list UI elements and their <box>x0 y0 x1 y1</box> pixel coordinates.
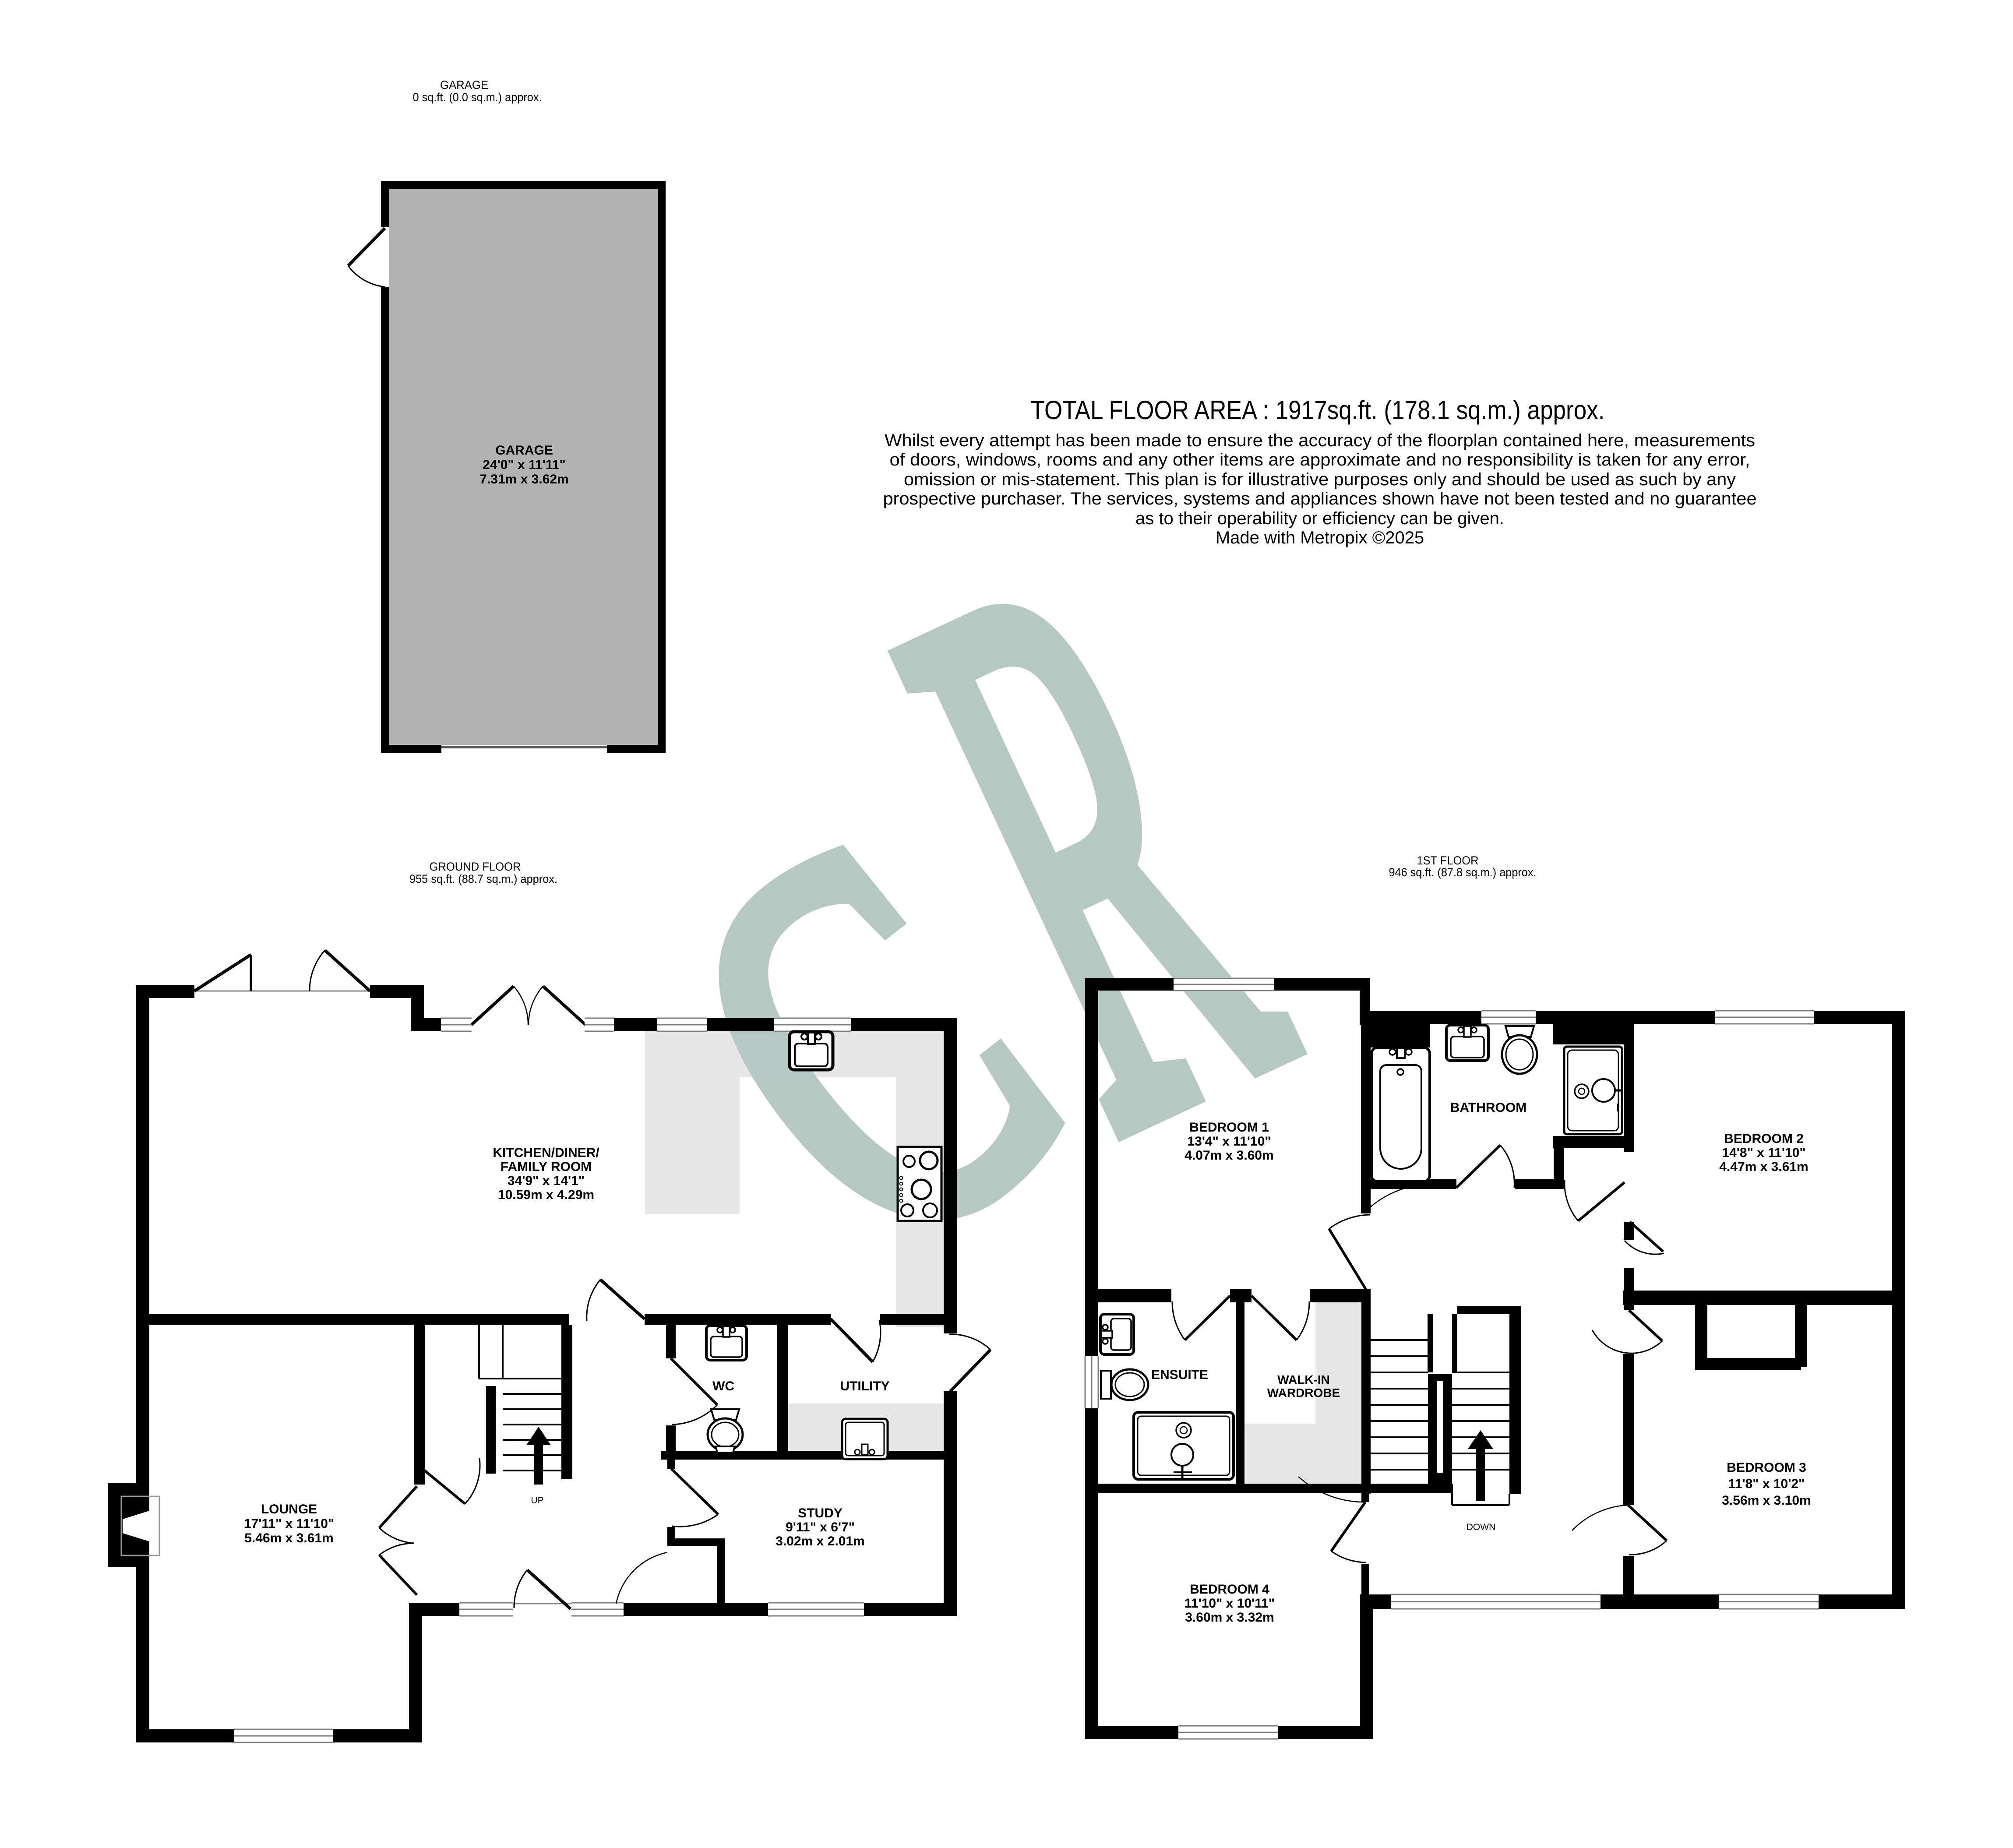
svg-text:GARAGE: GARAGE <box>495 443 553 458</box>
svg-text:UP: UP <box>531 1495 543 1506</box>
svg-text:11'8" x 10'2": 11'8" x 10'2" <box>1728 1477 1805 1491</box>
svg-text:3.60m x 3.32m: 3.60m x 3.32m <box>1185 1610 1274 1625</box>
svg-text:UTILITY: UTILITY <box>840 1379 889 1393</box>
svg-text:13'4" x 11'10": 13'4" x 11'10" <box>1187 1134 1271 1149</box>
svg-text:3.02m x 2.01m: 3.02m x 2.01m <box>776 1534 864 1548</box>
svg-text:prospective purchaser. The ser: prospective purchaser. The services, sys… <box>883 489 1757 508</box>
svg-text:Made with Metropix ©2025: Made with Metropix ©2025 <box>1216 528 1424 547</box>
svg-text:9'11" x 6'7": 9'11" x 6'7" <box>786 1520 855 1534</box>
svg-text:17'11" x 11'10": 17'11" x 11'10" <box>244 1516 334 1531</box>
svg-text:WALK-IN: WALK-IN <box>1277 1373 1330 1386</box>
svg-text:34'9" x 14'1": 34'9" x 14'1" <box>508 1174 585 1188</box>
svg-text:STUDY: STUDY <box>798 1506 843 1520</box>
svg-text:KITCHEN/DINER/: KITCHEN/DINER/ <box>493 1146 599 1160</box>
svg-text:5.46m x 3.61m: 5.46m x 3.61m <box>244 1531 333 1545</box>
svg-text:3.56m x 3.10m: 3.56m x 3.10m <box>1722 1493 1811 1508</box>
svg-text:955 sq.ft. (88.7 sq.m.) approx: 955 sq.ft. (88.7 sq.m.) approx. <box>409 872 557 885</box>
svg-text:ENSUITE: ENSUITE <box>1151 1368 1208 1382</box>
svg-text:BEDROOM 4: BEDROOM 4 <box>1190 1582 1269 1597</box>
svg-text:Whilst every attempt has been: Whilst every attempt has been made to en… <box>885 431 1755 450</box>
svg-text:BEDROOM 2: BEDROOM 2 <box>1724 1132 1804 1146</box>
svg-text:0 sq.ft. (0.0 sq.m.) approx.: 0 sq.ft. (0.0 sq.m.) approx. <box>413 91 542 104</box>
svg-text:omission or mis-statement. Thi: omission or mis-statement. This plan is … <box>904 470 1736 489</box>
svg-text:4.47m x 3.61m: 4.47m x 3.61m <box>1719 1160 1808 1174</box>
svg-text:GARAGE: GARAGE <box>440 78 488 92</box>
svg-text:7.31m x 3.62m: 7.31m x 3.62m <box>479 472 568 487</box>
svg-text:FAMILY ROOM: FAMILY ROOM <box>501 1160 592 1174</box>
svg-text:TOTAL FLOOR AREA : 1917sq.ft.: TOTAL FLOOR AREA : 1917sq.ft. (178.1 sq.… <box>1031 395 1605 425</box>
svg-text:14'8" x 11'10": 14'8" x 11'10" <box>1722 1146 1805 1160</box>
svg-text:as to their operability or eff: as to their operability or efficiency ca… <box>1135 509 1504 528</box>
svg-text:WC: WC <box>712 1379 734 1393</box>
svg-text:4.07m x 3.60m: 4.07m x 3.60m <box>1185 1148 1273 1163</box>
svg-text:11'10" x 10'11": 11'10" x 10'11" <box>1185 1596 1275 1611</box>
svg-text:10.59m x 4.29m: 10.59m x 4.29m <box>498 1188 594 1202</box>
svg-text:946 sq.ft. (87.8 sq.m.) approx: 946 sq.ft. (87.8 sq.m.) approx. <box>1389 866 1537 879</box>
svg-text:LOUNGE: LOUNGE <box>261 1502 317 1516</box>
svg-text:BEDROOM 3: BEDROOM 3 <box>1727 1460 1806 1475</box>
svg-text:of doors, windows, rooms and a: of doors, windows, rooms and any other i… <box>890 450 1750 469</box>
svg-text:BEDROOM 1: BEDROOM 1 <box>1189 1120 1269 1135</box>
svg-text:DOWN: DOWN <box>1467 1522 1496 1532</box>
svg-text:GROUND FLOOR: GROUND FLOOR <box>430 860 521 873</box>
svg-text:24'0" x 11'11": 24'0" x 11'11" <box>483 458 566 472</box>
svg-text:BATHROOM: BATHROOM <box>1450 1100 1526 1115</box>
svg-text:1ST FLOOR: 1ST FLOOR <box>1417 854 1479 867</box>
svg-text:WARDROBE: WARDROBE <box>1267 1386 1340 1400</box>
